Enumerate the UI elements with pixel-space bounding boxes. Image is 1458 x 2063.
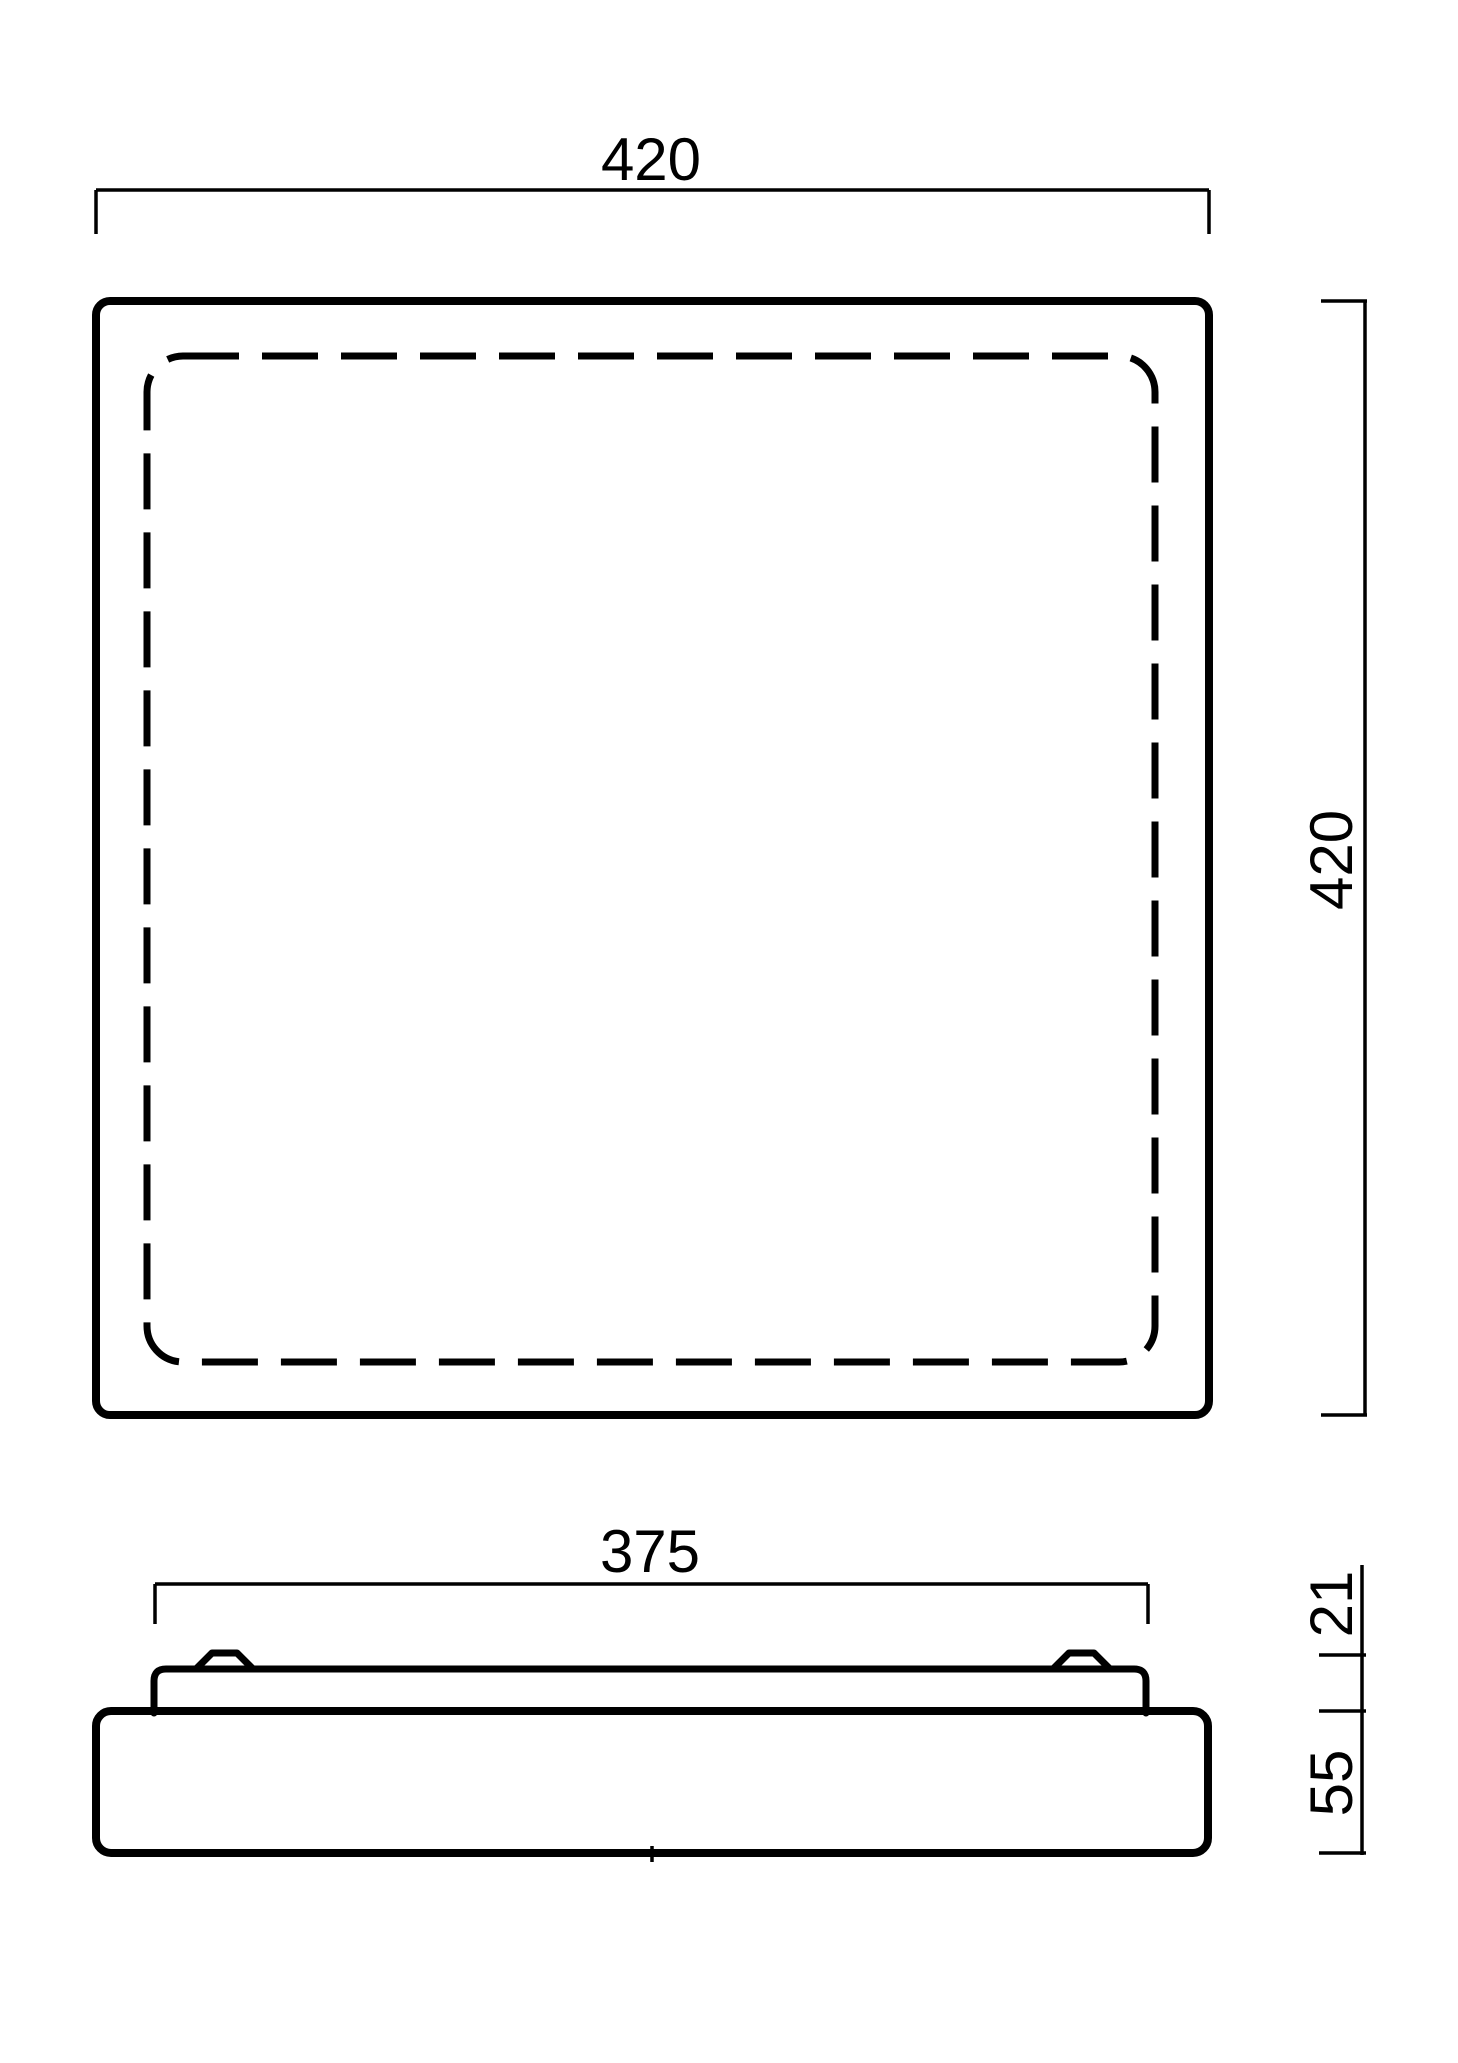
dimension-upper-height-label: 21 <box>1298 1571 1365 1638</box>
top-view-dashed-inner-outline <box>147 356 1155 1362</box>
dimension-plate-width: 375 <box>155 1518 1148 1624</box>
dimension-top-width-label: 420 <box>601 126 701 193</box>
dimension-profile-heights: 21 55 <box>1298 1565 1366 1855</box>
dimension-right-height: 420 <box>1298 301 1367 1415</box>
technical-drawing-page: 420 420 375 <box>0 0 1458 2063</box>
dimension-top-width: 420 <box>96 126 1209 234</box>
side-view-plate-outline <box>154 1669 1146 1713</box>
dimension-plate-width-label: 375 <box>600 1518 700 1585</box>
top-view-outer-outline <box>96 301 1209 1415</box>
dimension-lower-height-label: 55 <box>1298 1750 1365 1817</box>
dimension-right-height-label: 420 <box>1298 810 1365 910</box>
technical-drawing: 420 420 375 <box>0 0 1458 2063</box>
side-view-body-outline <box>96 1711 1208 1853</box>
side-view <box>96 1653 1208 1862</box>
top-view <box>96 301 1209 1415</box>
